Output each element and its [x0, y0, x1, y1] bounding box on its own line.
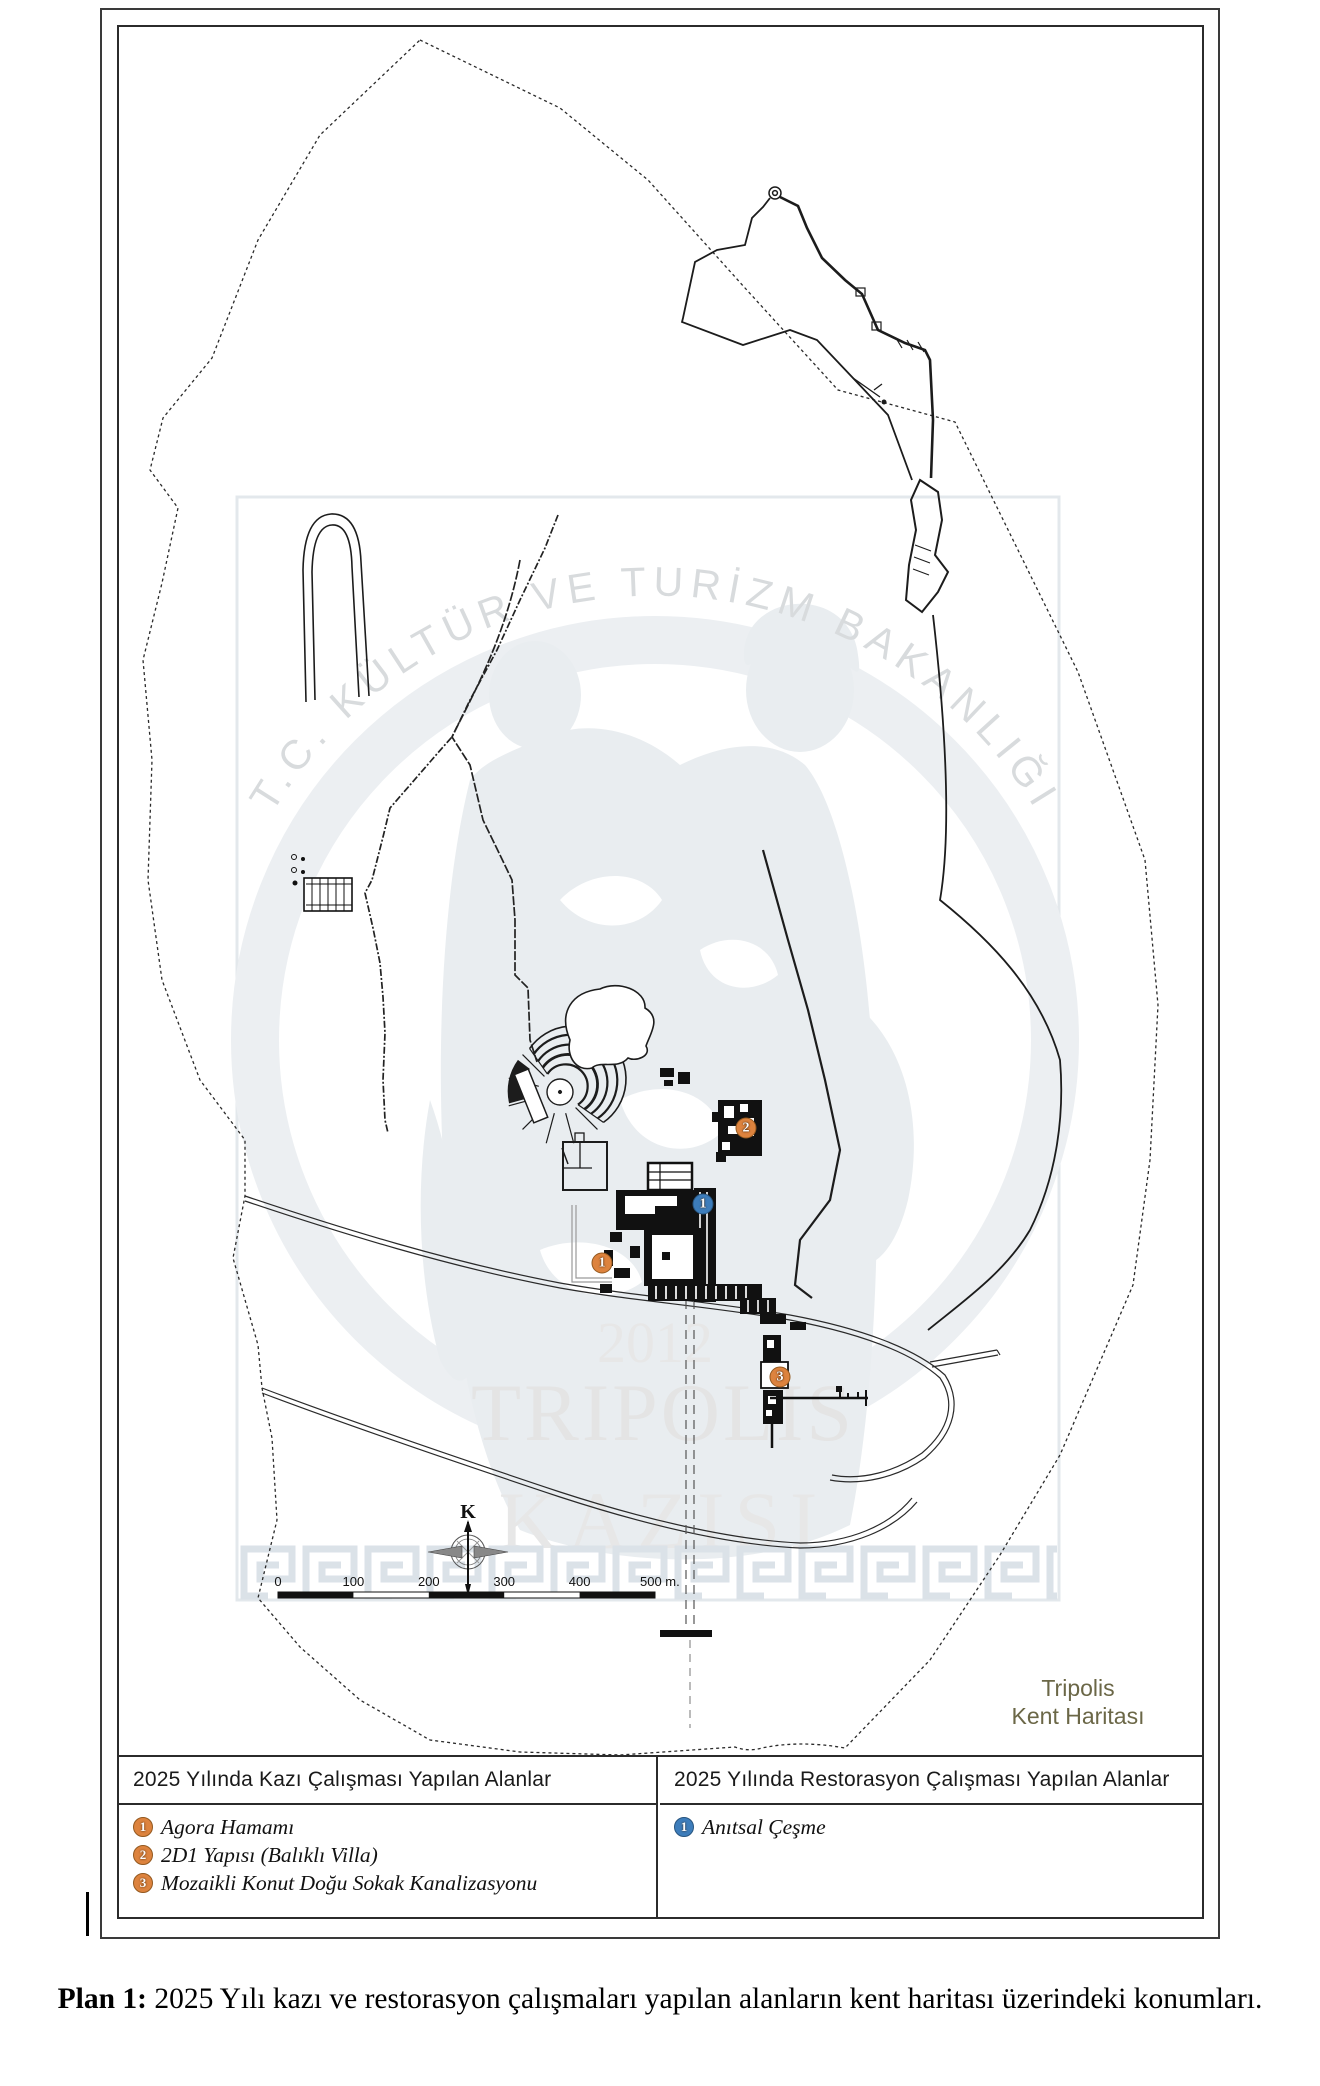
- caption-text: 2025 Yılı kazı ve restorasyon çalışmalar…: [147, 1983, 1262, 2015]
- marker-3-icon: 3: [133, 1873, 153, 1893]
- meander-band: [237, 1542, 1057, 1600]
- marker-blue-1-icon: 1: [674, 1817, 694, 1837]
- svg-text:0: 0: [274, 1574, 281, 1589]
- svg-text:300: 300: [493, 1574, 515, 1589]
- marker-2-icon: 2: [133, 1845, 153, 1865]
- north-wall-loop: [682, 187, 948, 612]
- map-drawing: T.C. KÜLTÜR VE TURİZM BAKANLIĞI 2012 TRI…: [119, 27, 1200, 1755]
- legend-item-mozaikli-konut: 3 Mozaikli Konut Doğu Sokak Kanalizasyon…: [133, 1869, 656, 1897]
- svg-text:100: 100: [343, 1574, 365, 1589]
- marker-1-icon: 1: [133, 1817, 153, 1837]
- watermark-emblem: T.C. KÜLTÜR VE TURİZM BAKANLIĞI 2012 TRI…: [237, 497, 1073, 1600]
- scale-end-label: 500 m.: [640, 1574, 680, 1589]
- ruin-outline: [566, 986, 654, 1069]
- legend-restoration-header: 2025 Yılında Restorasyon Çalışması Yapıl…: [660, 1757, 1202, 1805]
- svg-text:200: 200: [418, 1574, 440, 1589]
- city-map: T.C. KÜLTÜR VE TURİZM BAKANLIĞI 2012 TRI…: [119, 27, 1200, 1755]
- text-cursor-artifact: [86, 1892, 89, 1936]
- legend-item-agora-hamami: 1 Agora Hamamı: [133, 1813, 656, 1841]
- legend-excavation-header: 2025 Yılında Kazı Çalışması Yapılan Alan…: [119, 1757, 656, 1805]
- legend-item-label: Anıtsal Çeşme: [702, 1815, 826, 1840]
- map-title: Tripolis Kent Haritası: [1012, 1675, 1145, 1729]
- legend-item-anitsal-cesme: 1 Anıtsal Çeşme: [674, 1813, 1202, 1841]
- map-marker-excavation-2: 2: [736, 1118, 757, 1139]
- legend-item-2d1-yapisi: 2 2D1 Yapısı (Balıklı Villa): [133, 1841, 656, 1869]
- legend-item-label: Agora Hamamı: [161, 1815, 294, 1840]
- watermark-year: 2012: [597, 1310, 713, 1375]
- caption-label: Plan 1:: [58, 1983, 147, 2015]
- legend-restoration-column: 2025 Yılında Restorasyon Çalışması Yapıl…: [660, 1757, 1202, 1917]
- svg-text:400: 400: [569, 1574, 591, 1589]
- legend-excavation-column: 2025 Yılında Kazı Çalışması Yapılan Alan…: [119, 1757, 658, 1917]
- map-marker-restoration-1: 1: [693, 1194, 714, 1215]
- legend-table: 2025 Yılında Kazı Çalışması Yapılan Alan…: [117, 1755, 1202, 1917]
- legend-item-label: 2D1 Yapısı (Balıklı Villa): [161, 1843, 378, 1868]
- map-marker-excavation-1: 1: [592, 1253, 613, 1274]
- figure-caption: Plan 1: 2025 Yılı kazı ve restorasyon ça…: [10, 1978, 1310, 2021]
- page: T.C. KÜLTÜR VE TURİZM BAKANLIĞI 2012 TRI…: [0, 0, 1320, 2086]
- compass-north-label: K: [460, 1501, 476, 1523]
- watermark-title-1: TRIPOLIS: [471, 1367, 855, 1458]
- map-marker-excavation-3: 3: [770, 1367, 791, 1388]
- legend-item-label: Mozaikli Konut Doğu Sokak Kanalizasyonu: [161, 1871, 537, 1896]
- svg-text:Tripolis: Tripolis: [1041, 1675, 1114, 1701]
- svg-text:Kent Haritası: Kent Haritası: [1012, 1703, 1145, 1729]
